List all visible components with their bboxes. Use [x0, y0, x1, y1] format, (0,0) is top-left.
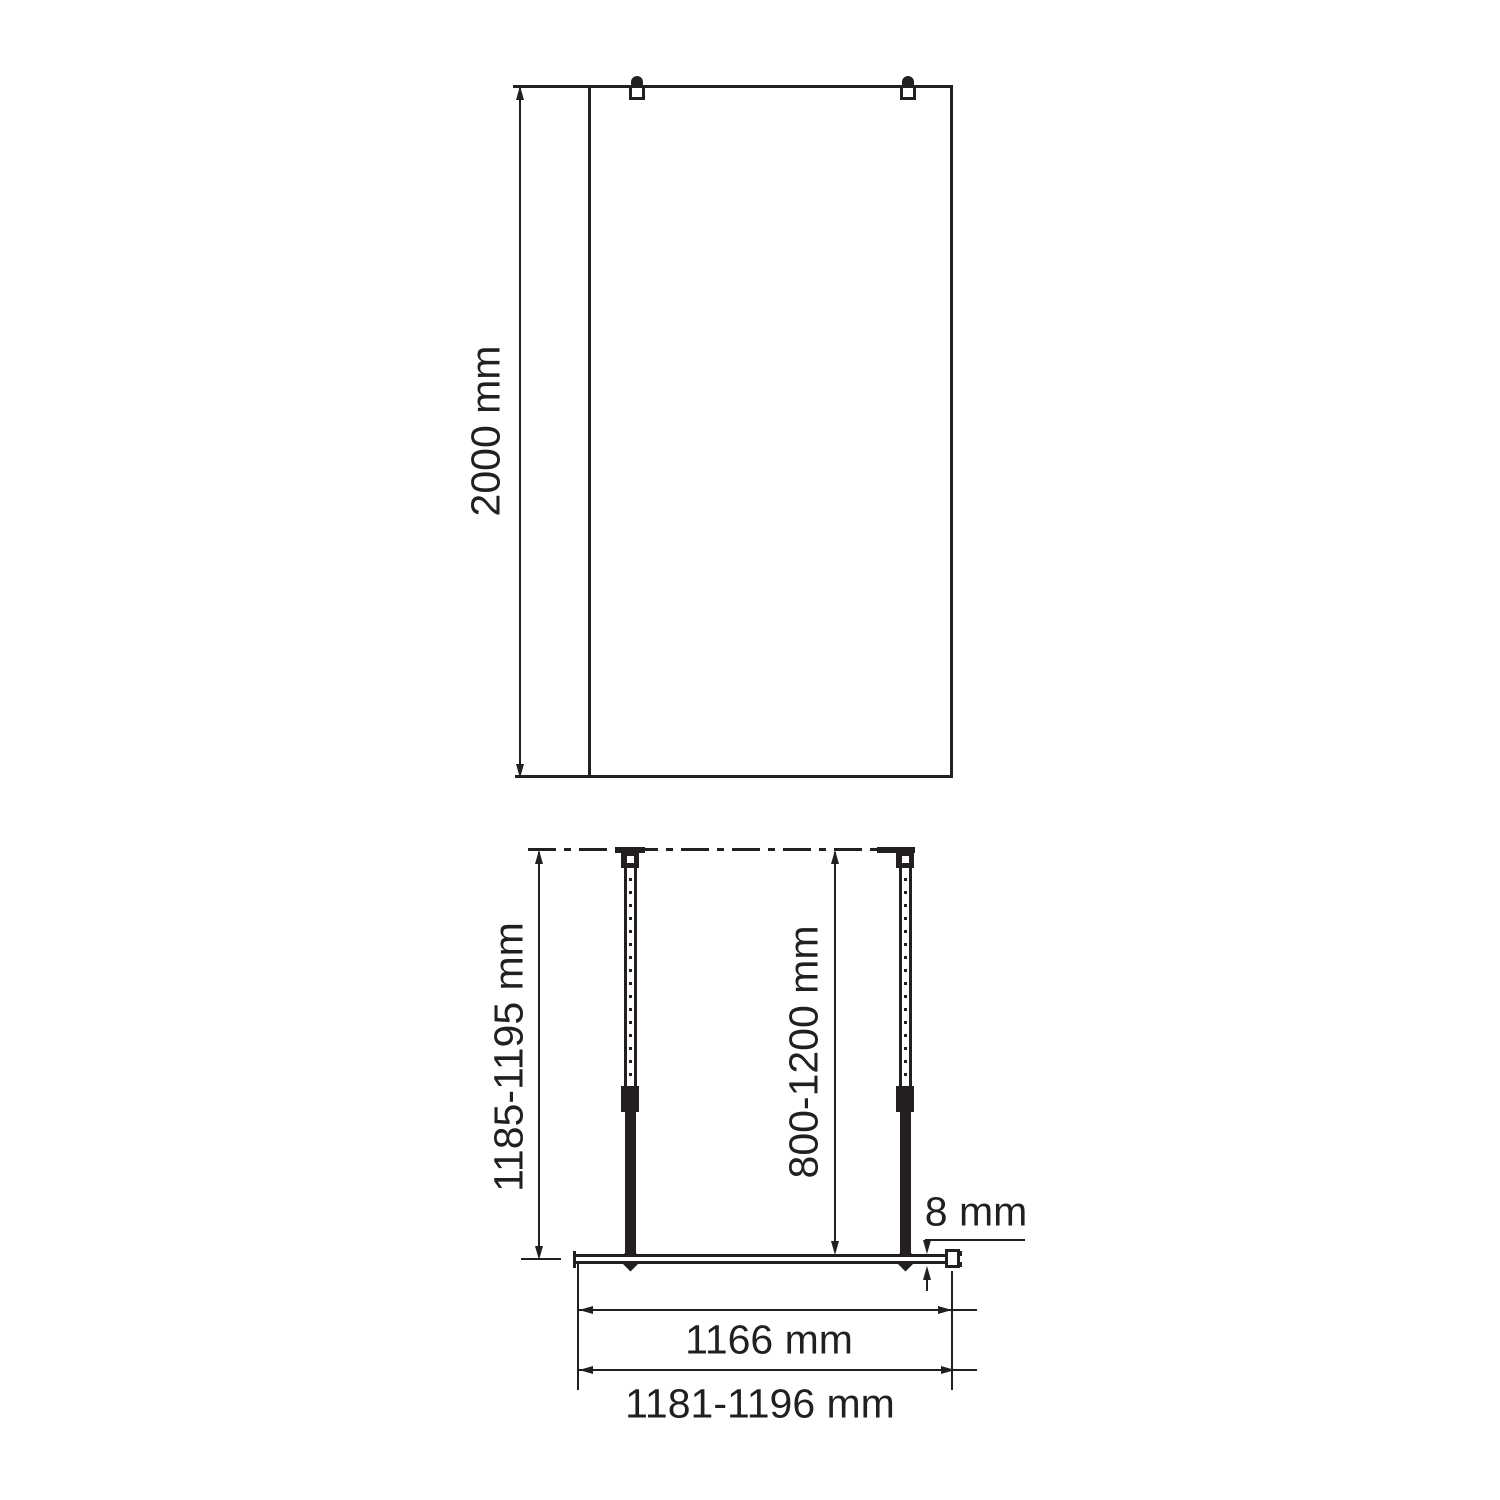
right-support-head-notch [902, 856, 909, 863]
glass-width-arrow-right [938, 1306, 952, 1314]
left-support-inner-tube-icon [624, 868, 637, 1086]
front-glass-left-edge [588, 85, 591, 778]
glass-width-label: 1166 mm [685, 1320, 853, 1361]
glass-thickness-arrow-down [923, 1240, 931, 1254]
front-height-dim-line [519, 88, 521, 766]
front-glass-right-edge [950, 85, 953, 778]
left-support-collar-icon [621, 1086, 639, 1112]
plan-wall-bracket-tab-bottom [957, 1262, 962, 1267]
overall-width-arrow-right [941, 1366, 955, 1374]
glass-width-dim-line [579, 1309, 977, 1311]
plan-support-dim-line [834, 852, 836, 1244]
plan-depth-label: 1185-1195 mm [489, 922, 530, 1192]
right-support-collar-icon [896, 1086, 914, 1112]
glass-thickness-arrow-stem [926, 1280, 928, 1291]
glass-width-arrow-left [579, 1306, 593, 1314]
front-height-arrow-up [516, 86, 524, 100]
overall-width-arrow-left [579, 1366, 593, 1374]
plan-glass-panel [574, 1254, 948, 1264]
plan-depth-bottom-tick [521, 1258, 561, 1260]
plan-glass-left-cap [573, 1251, 576, 1268]
overall-width-label: 1181-1196 mm [625, 1384, 895, 1425]
front-glass-top-edge [513, 85, 953, 88]
glass-thickness-arrow-up [923, 1266, 931, 1280]
technical-drawing-canvas: 2000 mm 1185-1195 mm [0, 0, 1500, 1500]
plan-support-arrow-down [831, 1241, 839, 1255]
plan-support-label: 800-1200 mm [784, 926, 825, 1179]
plan-depth-arrow-up [535, 850, 543, 864]
plan-support-arrow-up [831, 850, 839, 864]
overall-width-dim-line [579, 1369, 977, 1371]
right-support-outer-tube-icon [900, 1112, 911, 1254]
top-clamp-left-body-icon [629, 85, 645, 100]
wall-centerline [528, 848, 912, 851]
right-support-inner-tube-icon [899, 868, 912, 1086]
plan-depth-dim-line [538, 852, 540, 1248]
left-support-outer-tube-icon [625, 1112, 636, 1254]
plan-wall-bracket-tab-top [957, 1251, 962, 1256]
glass-thickness-leader-line [925, 1239, 1025, 1241]
front-height-label: 2000 mm [466, 346, 507, 517]
front-glass-bottom-edge [515, 775, 953, 778]
glass-thickness-label: 8 mm [925, 1192, 1028, 1233]
left-support-head-notch [627, 856, 634, 863]
top-clamp-right-body-icon [900, 85, 916, 100]
front-height-arrow-down [516, 764, 524, 778]
